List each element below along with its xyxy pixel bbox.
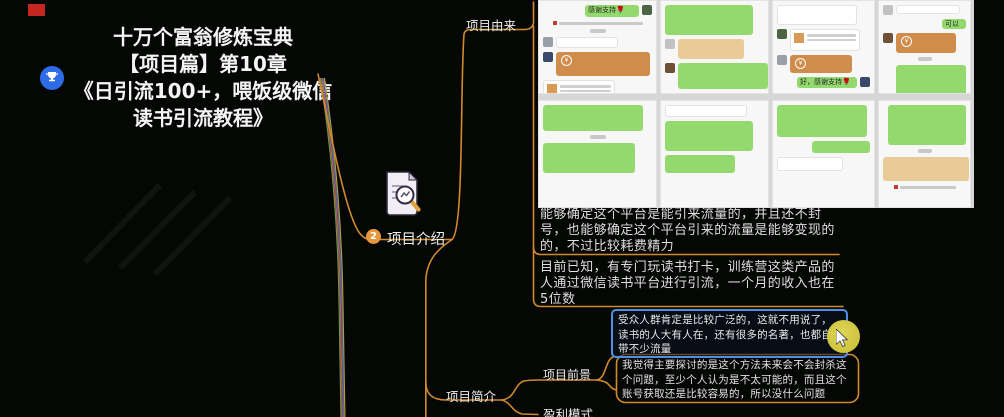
chat-panel	[538, 100, 657, 208]
chat-row	[543, 105, 652, 131]
root-title-line: 【项目篇】第10章	[70, 51, 336, 78]
chat-bubble	[896, 65, 966, 94]
chat-row	[883, 65, 966, 94]
cursor-highlight	[827, 320, 860, 353]
root-title-line: 十万个富翁修炼宝典	[70, 24, 336, 51]
chat-row	[665, 155, 764, 173]
chat-row	[665, 5, 764, 35]
system-message	[553, 21, 643, 25]
avatar	[665, 63, 675, 73]
watermark-strokes	[85, 185, 230, 274]
chat-bubble	[812, 141, 870, 153]
wechat-screenshot-collage[interactable]: 感谢支持🌹¥¥好，感谢支持🌹可以¥	[538, 0, 974, 208]
chat-bubble	[543, 105, 643, 131]
chat-bubble	[888, 105, 966, 145]
chat-bubble	[777, 5, 857, 25]
avatar	[860, 77, 870, 87]
chat-row: 可以	[883, 19, 966, 29]
chat-bubble	[543, 143, 635, 173]
node-origin[interactable]: 项目由来	[466, 15, 516, 34]
chat-panel: ¥好，感谢支持🌹	[772, 0, 875, 94]
chat-row	[777, 157, 870, 171]
chat-bubble	[665, 105, 747, 117]
chat-row	[883, 57, 966, 61]
avatar	[777, 55, 787, 65]
invite-thumbnail	[794, 33, 804, 43]
invite-text-bar	[807, 34, 856, 37]
chat-bubble	[665, 5, 753, 35]
chat-row	[883, 105, 966, 145]
system-text-bar	[900, 186, 956, 189]
avatar	[883, 5, 893, 15]
chat-row	[883, 185, 966, 189]
intro-number-badge: 2	[366, 229, 381, 244]
chat-row	[777, 105, 870, 137]
avatar	[665, 39, 675, 49]
chat-panel	[878, 100, 971, 208]
chat-panel: 可以¥	[878, 0, 971, 94]
collage-row: 感谢支持🌹¥¥好，感谢支持🌹可以¥	[538, 0, 974, 94]
chat-panel	[772, 100, 875, 208]
chat-row	[665, 63, 764, 89]
timestamp-bar	[590, 135, 606, 139]
timestamp-bar	[918, 57, 932, 61]
node-prospect[interactable]: 项目前景	[543, 366, 591, 383]
chat-row	[883, 157, 966, 181]
recording-marker	[28, 4, 45, 16]
chat-row	[777, 29, 870, 51]
chat-row	[777, 5, 870, 25]
system-message	[894, 185, 956, 189]
node-future-text[interactable]: 我觉得主要探讨的是这个方法未来会不会封杀这个问题，至少个人认为是不太可能的，而且…	[622, 358, 854, 402]
chat-row	[543, 135, 652, 139]
root-title-line: 《日引流100+，喂饭级微信	[70, 78, 336, 105]
group-invite-card	[790, 29, 860, 51]
transfer-icon: ¥	[795, 58, 806, 69]
chat-row	[665, 105, 764, 117]
trophy-icon	[40, 66, 64, 90]
chat-bubble	[678, 39, 744, 59]
chat-panel: 感谢支持🌹¥	[538, 0, 657, 94]
chat-row: ¥	[883, 33, 966, 53]
chat-row: 感谢支持🌹	[543, 5, 652, 17]
chat-row	[883, 5, 966, 15]
invite-text-bar	[560, 85, 611, 88]
chat-row	[777, 141, 870, 153]
chat-row	[543, 143, 652, 173]
transfer-icon: ¥	[901, 36, 912, 47]
chat-bubble	[883, 157, 969, 181]
timestamp-bar	[590, 29, 606, 33]
chat-bubble	[777, 157, 843, 171]
invite-text-lines	[560, 84, 611, 94]
timestamp-bar	[918, 149, 932, 153]
node-audience-selected[interactable]: 受众人群肯定是比较广泛的，这就不用说了，读书的人大有人在，还有很多的名著，也都自…	[611, 309, 848, 358]
collage-row	[538, 100, 974, 208]
system-icon	[553, 21, 557, 25]
mindmap-canvas: 十万个富翁修炼宝典 【项目篇】第10章 《日引流100+，喂饭级微信 读书引流教…	[0, 0, 1004, 417]
system-icon	[894, 185, 898, 189]
chat-row: ¥	[543, 52, 652, 76]
chat-panel	[660, 100, 769, 208]
chat-bubble: ¥	[896, 33, 956, 53]
avatar	[543, 52, 553, 62]
chat-bubble: 可以	[942, 19, 966, 29]
chat-row	[543, 29, 652, 33]
chat-bubble	[896, 5, 960, 14]
chat-bubble	[665, 155, 735, 173]
invite-text-bar	[560, 90, 611, 93]
chat-bubble: ¥	[556, 52, 650, 76]
chat-bubble	[665, 121, 753, 151]
document-magnifier-icon	[381, 168, 423, 216]
node-brief[interactable]: 项目简介	[446, 386, 496, 405]
invite-text-lines	[807, 33, 856, 47]
mouse-cursor-icon	[836, 329, 849, 347]
avatar	[777, 29, 787, 39]
chat-bubble	[556, 37, 618, 48]
avatar	[642, 5, 652, 15]
chat-bubble: ¥	[790, 55, 852, 73]
chat-row	[665, 39, 764, 59]
intro-label: 项目介绍	[387, 228, 445, 249]
system-text-bar	[559, 22, 643, 25]
node-profit[interactable]: 盈利模式	[543, 404, 593, 417]
chat-bubble: 感谢支持🌹	[585, 5, 639, 17]
chat-row: ¥	[777, 55, 870, 73]
root-title-line: 读书引流教程》	[70, 105, 336, 132]
chat-row: 好，感谢支持🌹	[777, 77, 870, 88]
chat-bubble: 好，感谢支持🌹	[797, 77, 857, 88]
avatar	[543, 37, 553, 47]
root-title: 十万个富翁修炼宝典 【项目篇】第10章 《日引流100+，喂饭级微信 读书引流教…	[70, 24, 336, 132]
node-origin-text-1[interactable]: 能够确定这个平台是能引来流量的，并且还不封号，也能够确定这个平台引来的流量是能够…	[540, 207, 838, 254]
chat-bubble	[777, 105, 867, 137]
invite-text-bar	[807, 39, 856, 42]
transfer-icon: ¥	[561, 55, 572, 66]
chat-row	[665, 121, 764, 151]
chat-panel	[660, 0, 769, 94]
group-invite-card	[543, 80, 615, 94]
node-origin-text-2[interactable]: 目前已知，有专门玩读书打卡，训练营这类产品的人通过微信读书平台进行引流，一个月的…	[540, 260, 838, 307]
avatar	[883, 33, 893, 43]
chat-row	[543, 80, 652, 94]
chat-row	[543, 37, 652, 48]
chat-bubble	[678, 63, 768, 89]
chat-row	[883, 149, 966, 153]
chat-row	[543, 21, 652, 25]
invite-thumbnail	[547, 84, 557, 94]
